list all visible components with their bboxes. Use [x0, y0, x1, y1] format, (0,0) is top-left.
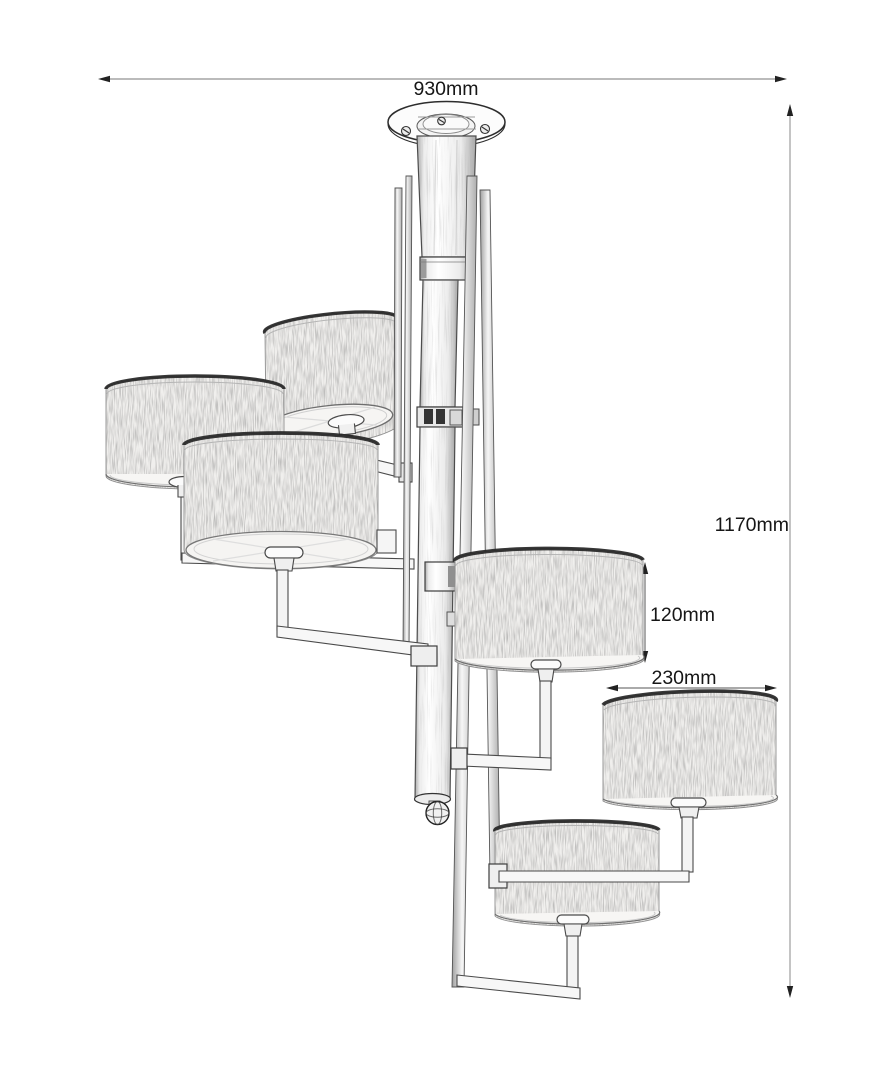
- svg-text:1170mm: 1170mm: [715, 514, 789, 536]
- svg-text:120mm: 120mm: [650, 604, 715, 626]
- svg-text:930mm: 930mm: [413, 78, 478, 100]
- svg-text:230mm: 230mm: [651, 667, 716, 689]
